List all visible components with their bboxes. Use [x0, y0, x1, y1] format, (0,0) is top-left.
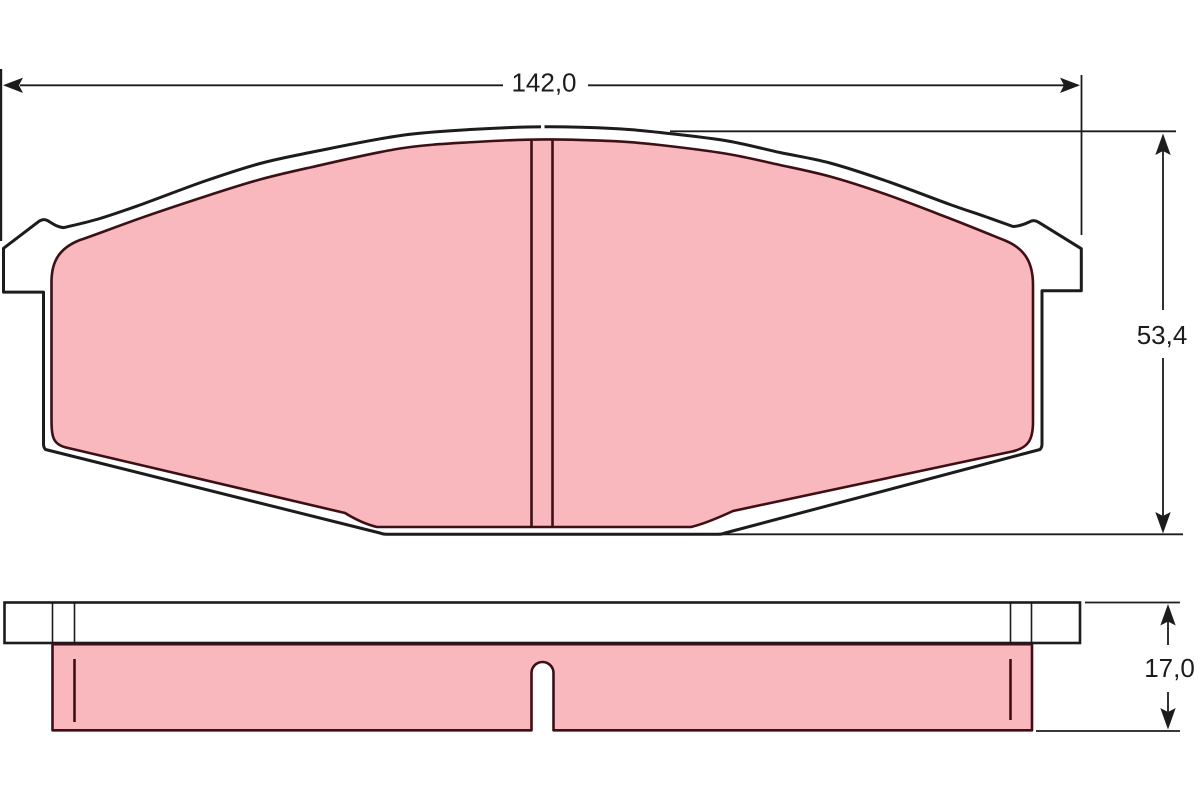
svg-text:17,0: 17,0 [1144, 653, 1195, 683]
svg-text:53,4: 53,4 [1137, 320, 1188, 350]
svg-text:142,0: 142,0 [511, 68, 576, 98]
